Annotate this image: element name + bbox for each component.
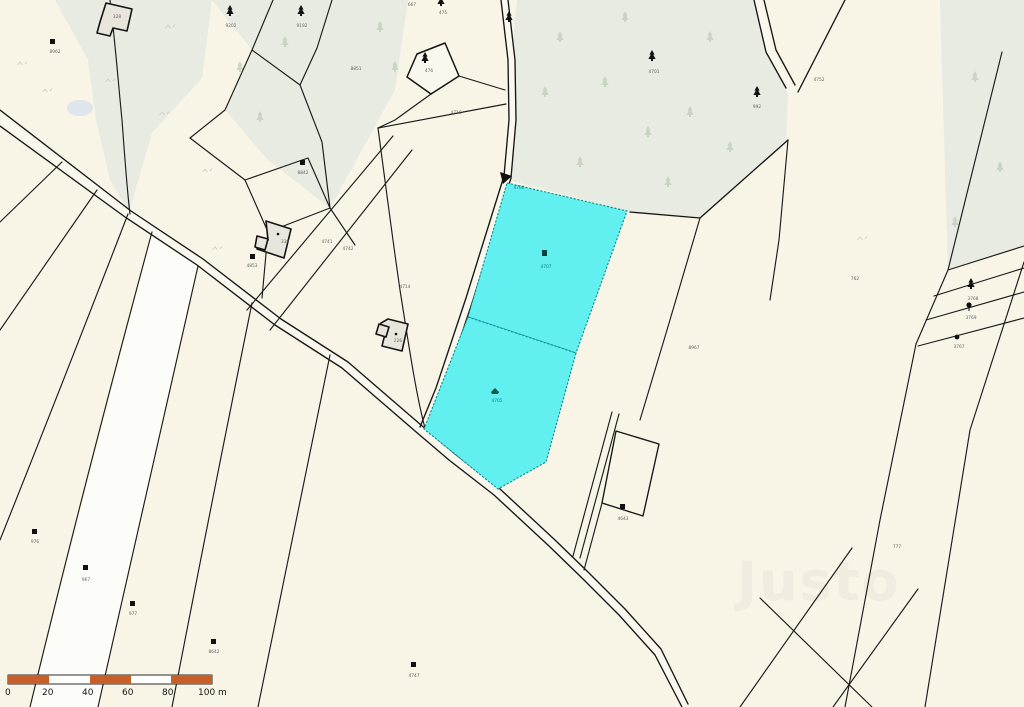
watermark-text: Justo bbox=[733, 550, 901, 613]
parcel-label: 3767 bbox=[954, 344, 965, 350]
parcel-label: 8967 bbox=[689, 345, 700, 351]
parcel-label: 777 bbox=[893, 544, 901, 550]
parcel-label: 226 bbox=[394, 338, 402, 344]
parcel-label: 4701 bbox=[649, 69, 660, 75]
parcel-label: 4716 bbox=[451, 110, 462, 116]
parcel-label: 8851 bbox=[351, 66, 362, 72]
parcel-label: 328 bbox=[113, 14, 121, 20]
parcel-label: 4707 bbox=[541, 264, 552, 270]
scale-tick-label: 80 bbox=[162, 688, 174, 698]
square-symbol bbox=[83, 565, 88, 570]
square-symbol bbox=[300, 160, 305, 165]
parcel-label: 4700 bbox=[514, 185, 525, 191]
parcel-label: 9192 bbox=[297, 23, 308, 29]
scale-bar-segment bbox=[8, 675, 49, 684]
parcel-label: 967 bbox=[82, 577, 90, 583]
square-symbol bbox=[620, 504, 625, 509]
scale-bar-segment bbox=[171, 675, 212, 684]
square-symbol bbox=[211, 639, 216, 644]
cadastral-map[interactable]: Justo bbox=[0, 0, 1024, 707]
scale-tick-label: 60 bbox=[122, 688, 134, 698]
parcel-label: 4714 bbox=[400, 284, 411, 290]
parcel-label: 4752 bbox=[814, 77, 825, 83]
square-symbol bbox=[250, 254, 255, 259]
parcel-label: 4643 bbox=[618, 516, 629, 522]
square-symbol bbox=[130, 601, 135, 606]
parcel-label: 762 bbox=[851, 276, 859, 282]
square-symbol bbox=[411, 662, 416, 667]
parcel-label: 8642 bbox=[209, 649, 220, 655]
parcel-label: 475 bbox=[439, 10, 447, 16]
scale-tick-label: 20 bbox=[42, 688, 54, 698]
parcel-label: 667 bbox=[408, 2, 416, 8]
parcel-label: 976 bbox=[31, 539, 39, 545]
parcel-building-symbol bbox=[542, 250, 547, 256]
building-annex-midleft bbox=[255, 236, 268, 250]
parcel-label: 4742 bbox=[343, 246, 354, 252]
parcel-label: 9202 bbox=[226, 23, 237, 29]
parcel-label: 8962 bbox=[50, 49, 61, 55]
scale-tick-label: 0 bbox=[5, 688, 11, 698]
parcel-label: 977 bbox=[129, 611, 137, 617]
point-symbol bbox=[955, 335, 960, 340]
parcel-label: 476 bbox=[425, 68, 433, 74]
parcel-label: 8842 bbox=[298, 170, 309, 176]
square-symbol bbox=[32, 529, 37, 534]
parcel-label: 3768 bbox=[968, 296, 979, 302]
parcel-label: 338 bbox=[281, 239, 289, 245]
parcel-label: 992 bbox=[753, 104, 761, 110]
map-viewport[interactable]: Justo bbox=[0, 0, 1024, 707]
square-symbol bbox=[50, 39, 55, 44]
parcel-label: 3769 bbox=[966, 315, 977, 321]
building-point-symbol bbox=[395, 333, 398, 336]
building-annex-center bbox=[376, 324, 389, 337]
pond bbox=[67, 100, 93, 116]
parcel-label: 4741 bbox=[322, 239, 333, 245]
parcel-label: 4747 bbox=[409, 673, 420, 679]
scale-tick-label: 40 bbox=[82, 688, 94, 698]
scale-bar-segment bbox=[90, 675, 131, 684]
parcel-label: 4853 bbox=[247, 263, 258, 269]
building-point-symbol bbox=[277, 233, 280, 236]
scale-tick-label: 100 m bbox=[198, 688, 227, 698]
parcel-label: 4705 bbox=[492, 398, 503, 404]
